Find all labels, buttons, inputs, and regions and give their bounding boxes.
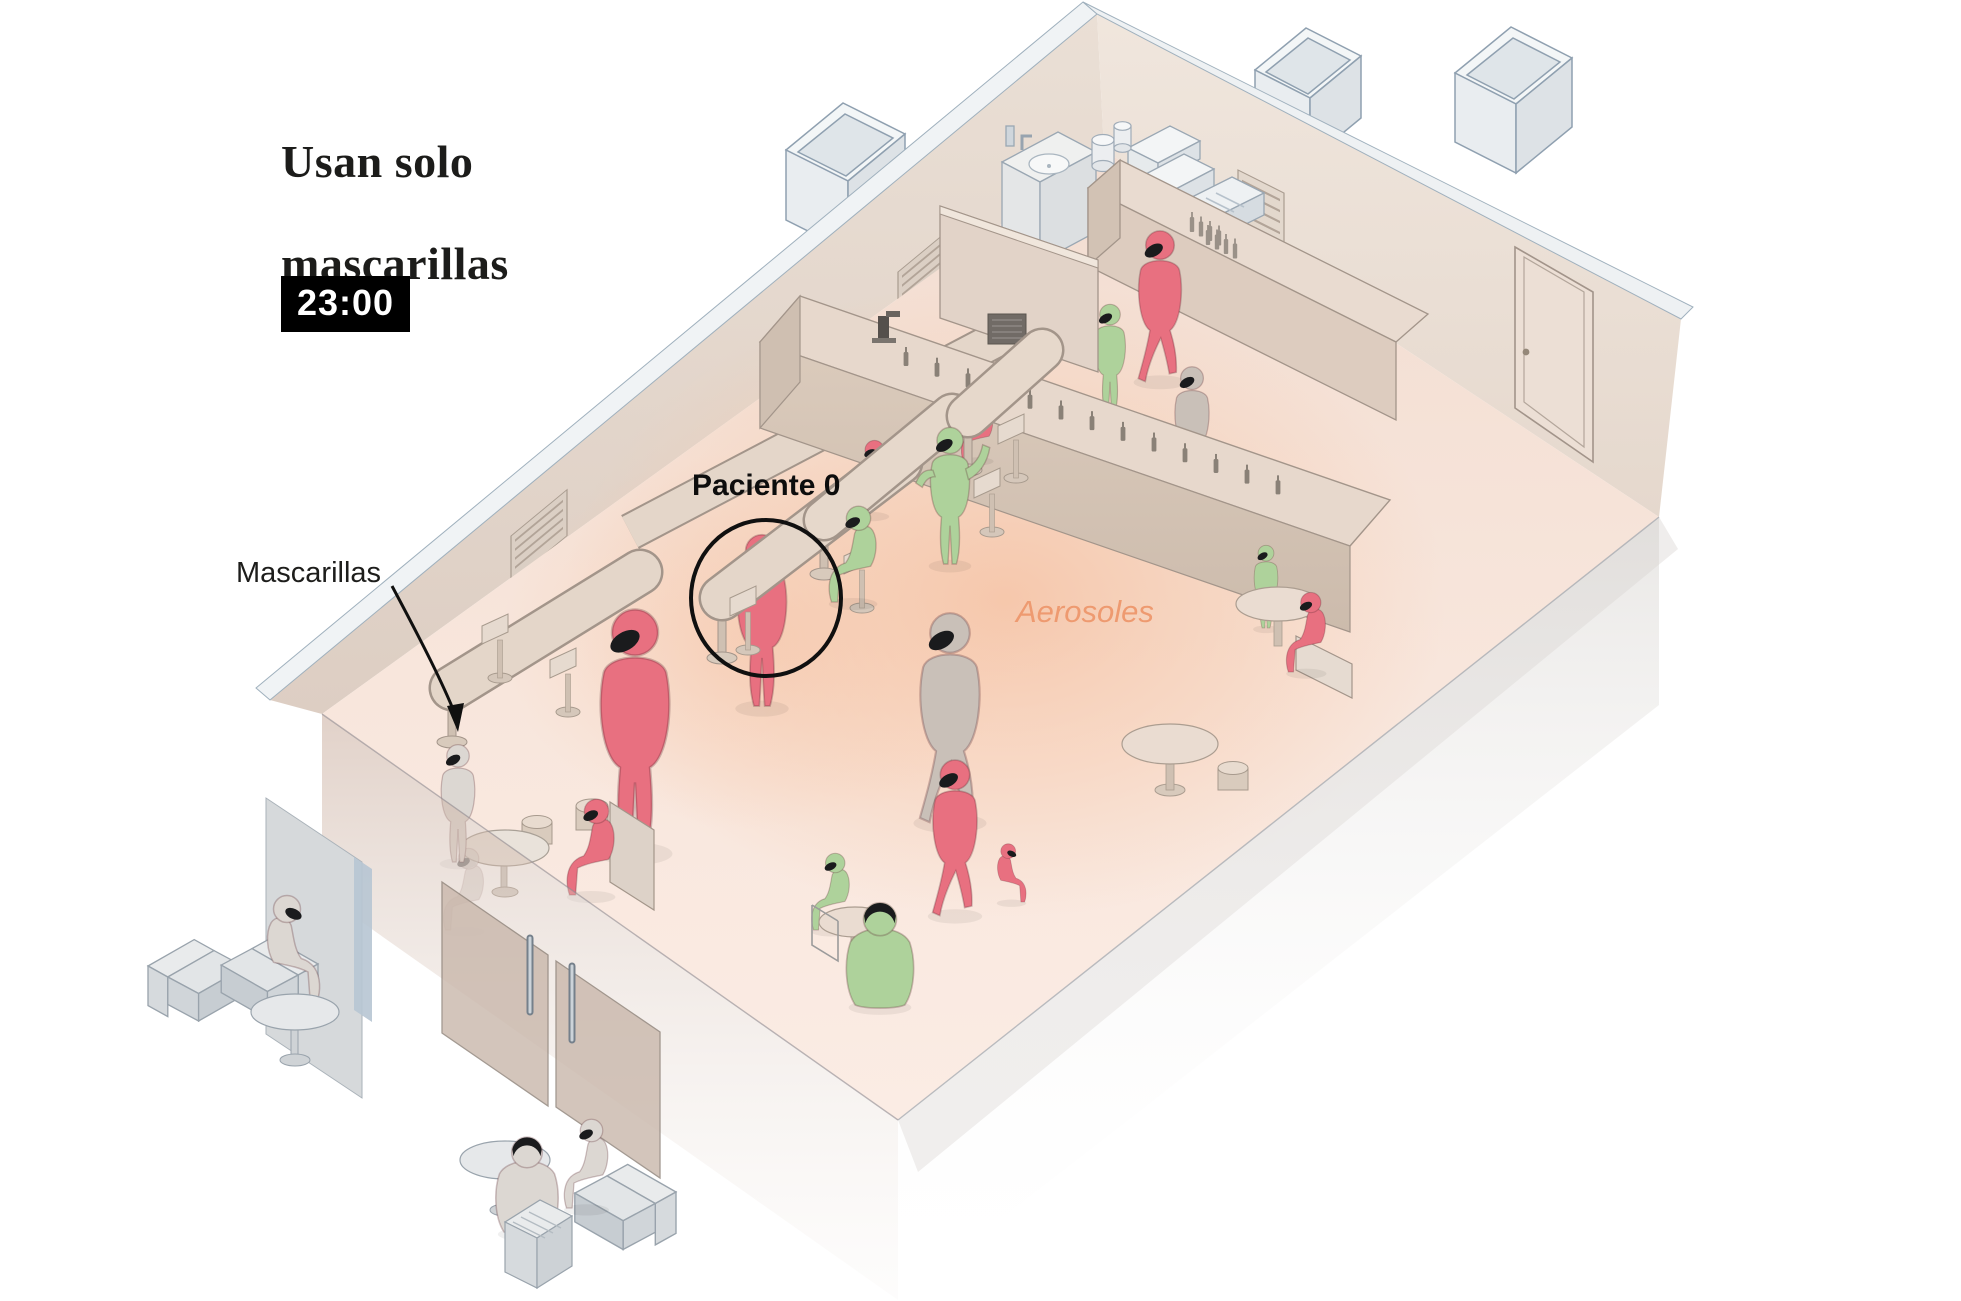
- title-line1: Usan solo: [281, 136, 473, 187]
- chart-title: Usan solo mascarillas: [281, 136, 509, 289]
- label-mascarillas: Mascarillas: [236, 557, 381, 590]
- time-badge: 23:00: [281, 276, 410, 332]
- label-aerosoles: Aerosoles: [1016, 594, 1154, 630]
- label-paciente0: Paciente 0: [692, 469, 840, 503]
- cyl-stool-3: [1218, 762, 1248, 791]
- door-frame-strip: [354, 857, 372, 1022]
- infographic-canvas: Usan solo mascarillas 23:00 Mascarillas …: [0, 0, 1961, 1301]
- vent-cube-right: [1455, 27, 1572, 173]
